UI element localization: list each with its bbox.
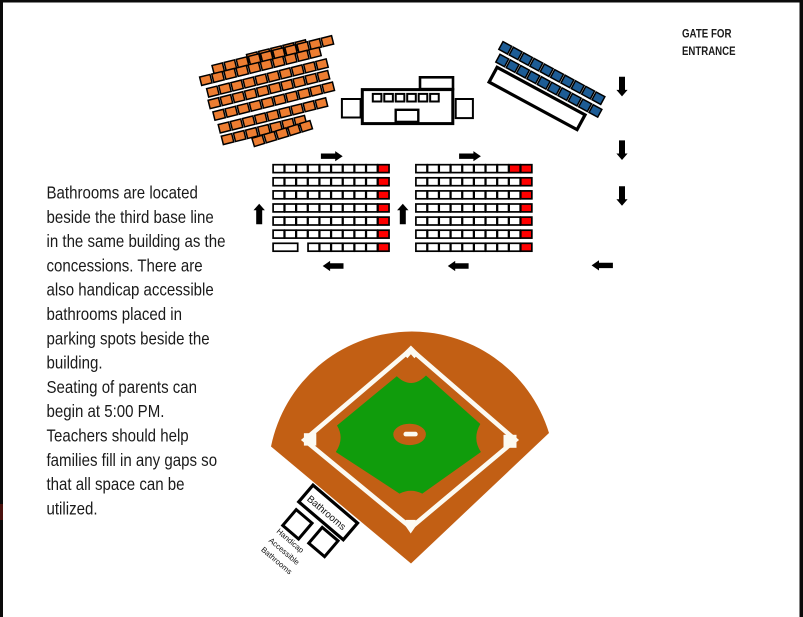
svg-text:Teachers should help: Teachers should help <box>47 426 189 445</box>
svg-text:beside the third base line: beside the third base line <box>47 208 214 227</box>
svg-text:bathrooms placed in: bathrooms placed in <box>47 305 182 324</box>
svg-text:building.: building. <box>47 354 103 373</box>
svg-text:GATE FOR: GATE FOR <box>682 27 732 41</box>
svg-text:also handicap accessible: also handicap accessible <box>47 281 214 300</box>
svg-text:concessions. There are: concessions. There are <box>47 256 203 275</box>
svg-text:ENTRANCE: ENTRANCE <box>682 44 736 58</box>
svg-text:families fill in any gaps so: families fill in any gaps so <box>47 451 218 470</box>
svg-text:begin at 5:00 PM.: begin at 5:00 PM. <box>47 402 165 421</box>
svg-text:Bathrooms are located: Bathrooms are located <box>47 183 198 202</box>
svg-text:utilized.: utilized. <box>47 499 98 518</box>
svg-text:that all space can be: that all space can be <box>47 475 185 494</box>
svg-text:parking spots beside the: parking spots beside the <box>47 329 210 348</box>
svg-text:in the same building as the: in the same building as the <box>47 232 226 251</box>
svg-text:Seating of parents can: Seating of parents can <box>47 378 198 397</box>
